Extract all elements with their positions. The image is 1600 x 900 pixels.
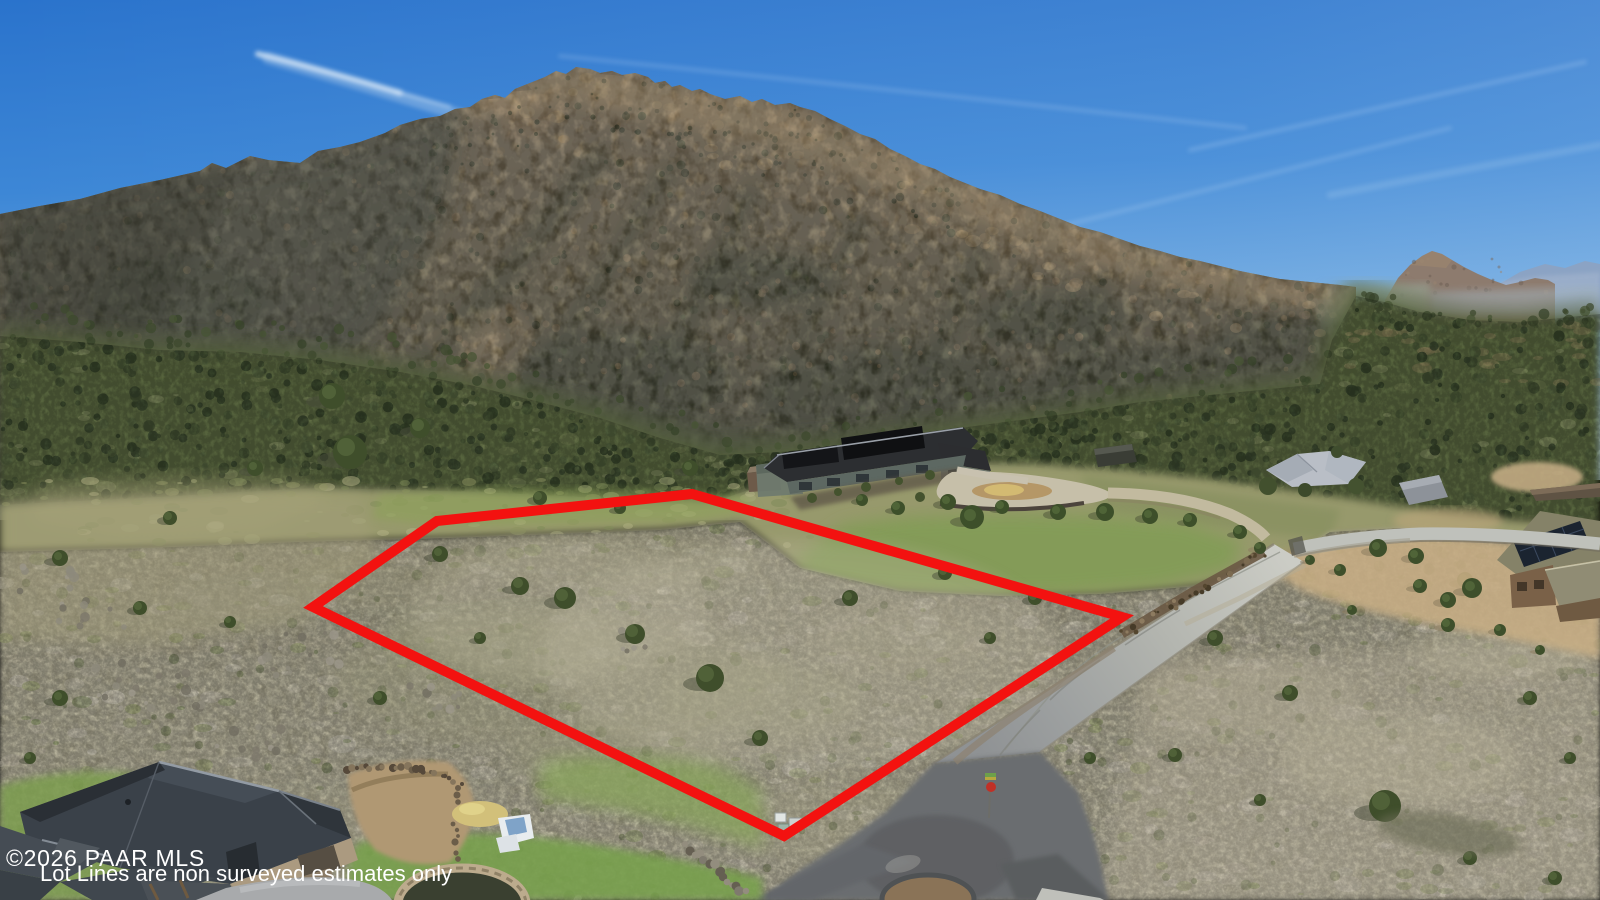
svg-text:Lot Lines are non surveyed est: Lot Lines are non surveyed estimates onl… [40, 861, 452, 886]
